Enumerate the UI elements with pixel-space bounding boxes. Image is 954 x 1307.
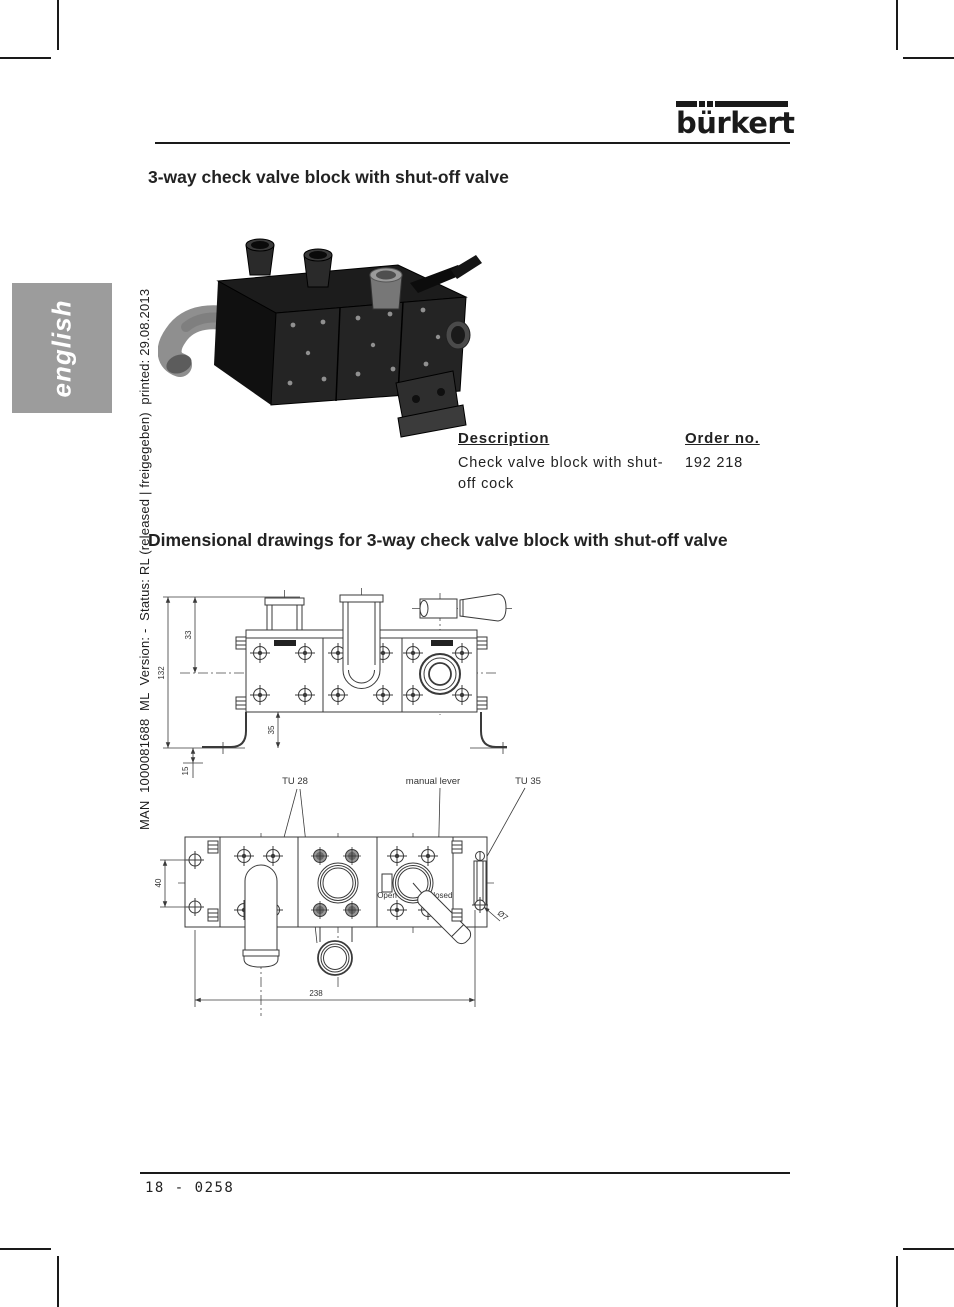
drawings-section-title: Dimensional drawings for 3-way check val… [148, 529, 756, 553]
document-page: bürkert 3-way check valve block with shu… [0, 0, 954, 1307]
label-manual-lever: manual lever [406, 776, 460, 787]
nameplate [431, 640, 453, 646]
page-title: 3-way check valve block with shut-off va… [148, 167, 509, 188]
dim-238: 238 [309, 989, 323, 998]
page-number: 18 - 0258 [145, 1180, 234, 1196]
label-open: Open [377, 891, 397, 900]
crop-mark [57, 0, 59, 50]
dimensional-drawing-front: 132 33 35 15 [150, 585, 520, 785]
nameplate [274, 640, 296, 646]
product-photo [158, 213, 493, 453]
crop-mark [903, 1248, 954, 1250]
crop-mark [896, 0, 898, 50]
dim-33: 33 [184, 630, 193, 639]
label-diameter: Ø7 [496, 909, 510, 923]
language-tab: english [12, 283, 112, 413]
description-header: Description [458, 430, 668, 447]
language-tab-label: english [46, 299, 77, 397]
header-rule [155, 142, 790, 144]
crop-mark [57, 1256, 59, 1307]
front-view-drawing: 132 33 35 15 [157, 588, 514, 778]
crop-mark [903, 57, 954, 59]
label-tu28: TU 28 [282, 776, 308, 787]
dim-40: 40 [154, 878, 163, 887]
order-no-value: 192 218 [685, 453, 760, 474]
crop-mark [0, 57, 51, 59]
label-tu35: TU 35 [515, 776, 541, 787]
footer-rule [140, 1172, 790, 1174]
dimensional-drawing-top: TU 28 manual lever TU 35 40 [150, 775, 550, 1020]
crop-mark [0, 1248, 51, 1250]
description-value: Check valve block with shut-off cock [458, 453, 668, 495]
logo-wordmark: bürkert [676, 109, 792, 138]
dim-132: 132 [157, 666, 166, 680]
dim-35: 35 [267, 725, 276, 734]
top-view-drawing: TU 28 manual lever TU 35 40 [154, 776, 541, 1016]
valve-block-photo [164, 239, 482, 437]
burkert-logo: bürkert [676, 101, 792, 138]
crop-mark [896, 1256, 898, 1307]
order-no-header: Order no. [685, 430, 760, 447]
